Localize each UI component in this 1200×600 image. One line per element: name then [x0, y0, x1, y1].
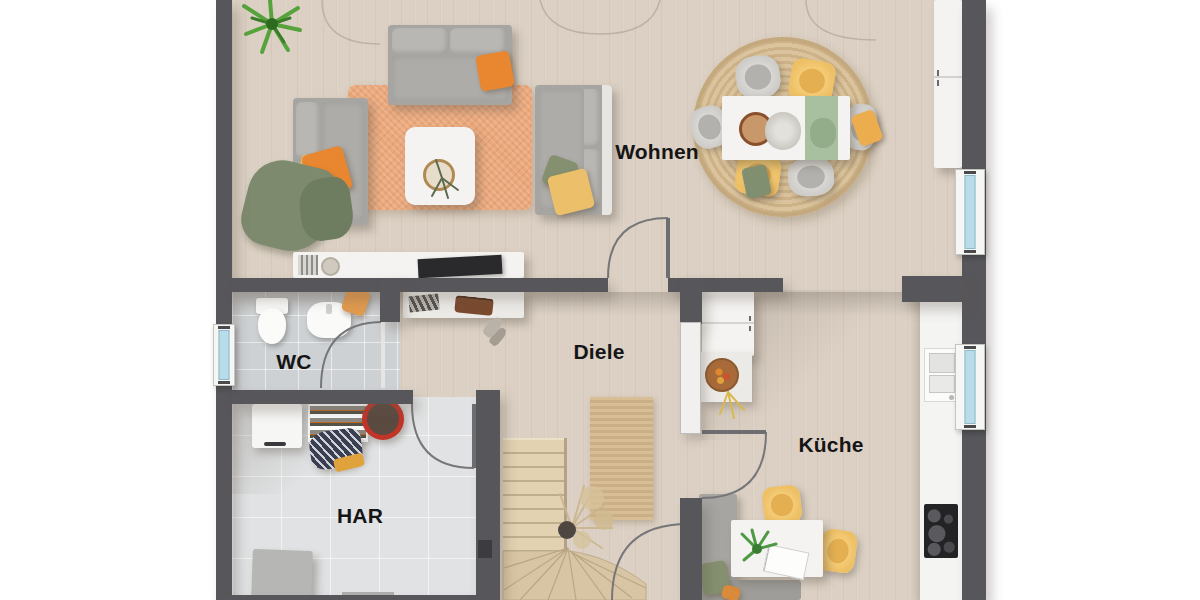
wall-wohnen-diele — [232, 278, 608, 292]
cooktop — [924, 504, 958, 558]
wall-kueche-partition — [680, 322, 701, 434]
wall-cabinet-dining — [934, 0, 962, 168]
staircase-railing — [564, 438, 567, 554]
fridge-cabinet — [702, 290, 754, 356]
wall-kueche-top-stub — [902, 276, 962, 302]
window-kueche — [955, 344, 985, 430]
kitchen-chair-2 — [817, 528, 858, 575]
dining-chair-gray-4 — [787, 156, 836, 197]
centerpiece-flowers — [765, 112, 801, 150]
staircase-flight — [503, 438, 567, 555]
label-har: HAR — [337, 504, 383, 528]
clutch-bag — [454, 295, 494, 316]
coffee-table — [405, 127, 475, 205]
kitchen-counter — [920, 290, 962, 600]
laundry-basket-red — [362, 398, 404, 440]
label-kueche: Küche — [798, 433, 863, 457]
wall-kueche-vert-lower — [680, 498, 702, 600]
window-wc — [213, 324, 235, 386]
wall-har-right — [476, 390, 500, 600]
kitchen-table — [731, 520, 823, 577]
book — [763, 544, 810, 580]
label-diele: Diele — [573, 340, 624, 364]
washing-machine — [252, 404, 302, 448]
dining-table — [722, 96, 850, 160]
hallway-runner-rug — [590, 397, 653, 520]
toilet-bowl — [258, 308, 286, 344]
fruit-bowl — [705, 358, 739, 392]
hall-shelf — [403, 290, 524, 318]
kitchen-side-counter — [700, 352, 752, 402]
wall-wc-right-stub — [380, 278, 400, 322]
storage-box — [251, 549, 313, 600]
wall-kueche-vert-upper — [680, 278, 702, 324]
wall-bottom-left — [216, 595, 480, 600]
floor-plan: Wohnen Diele WC HAR Küche — [0, 0, 1200, 600]
label-wc: WC — [276, 350, 311, 374]
wall-wc-har — [232, 390, 413, 404]
wall-left — [216, 0, 232, 600]
window-wohnen — [955, 169, 985, 255]
label-wohnen: Wohnen — [615, 140, 699, 164]
pillow-orange — [475, 50, 515, 91]
wall-right — [962, 0, 986, 600]
